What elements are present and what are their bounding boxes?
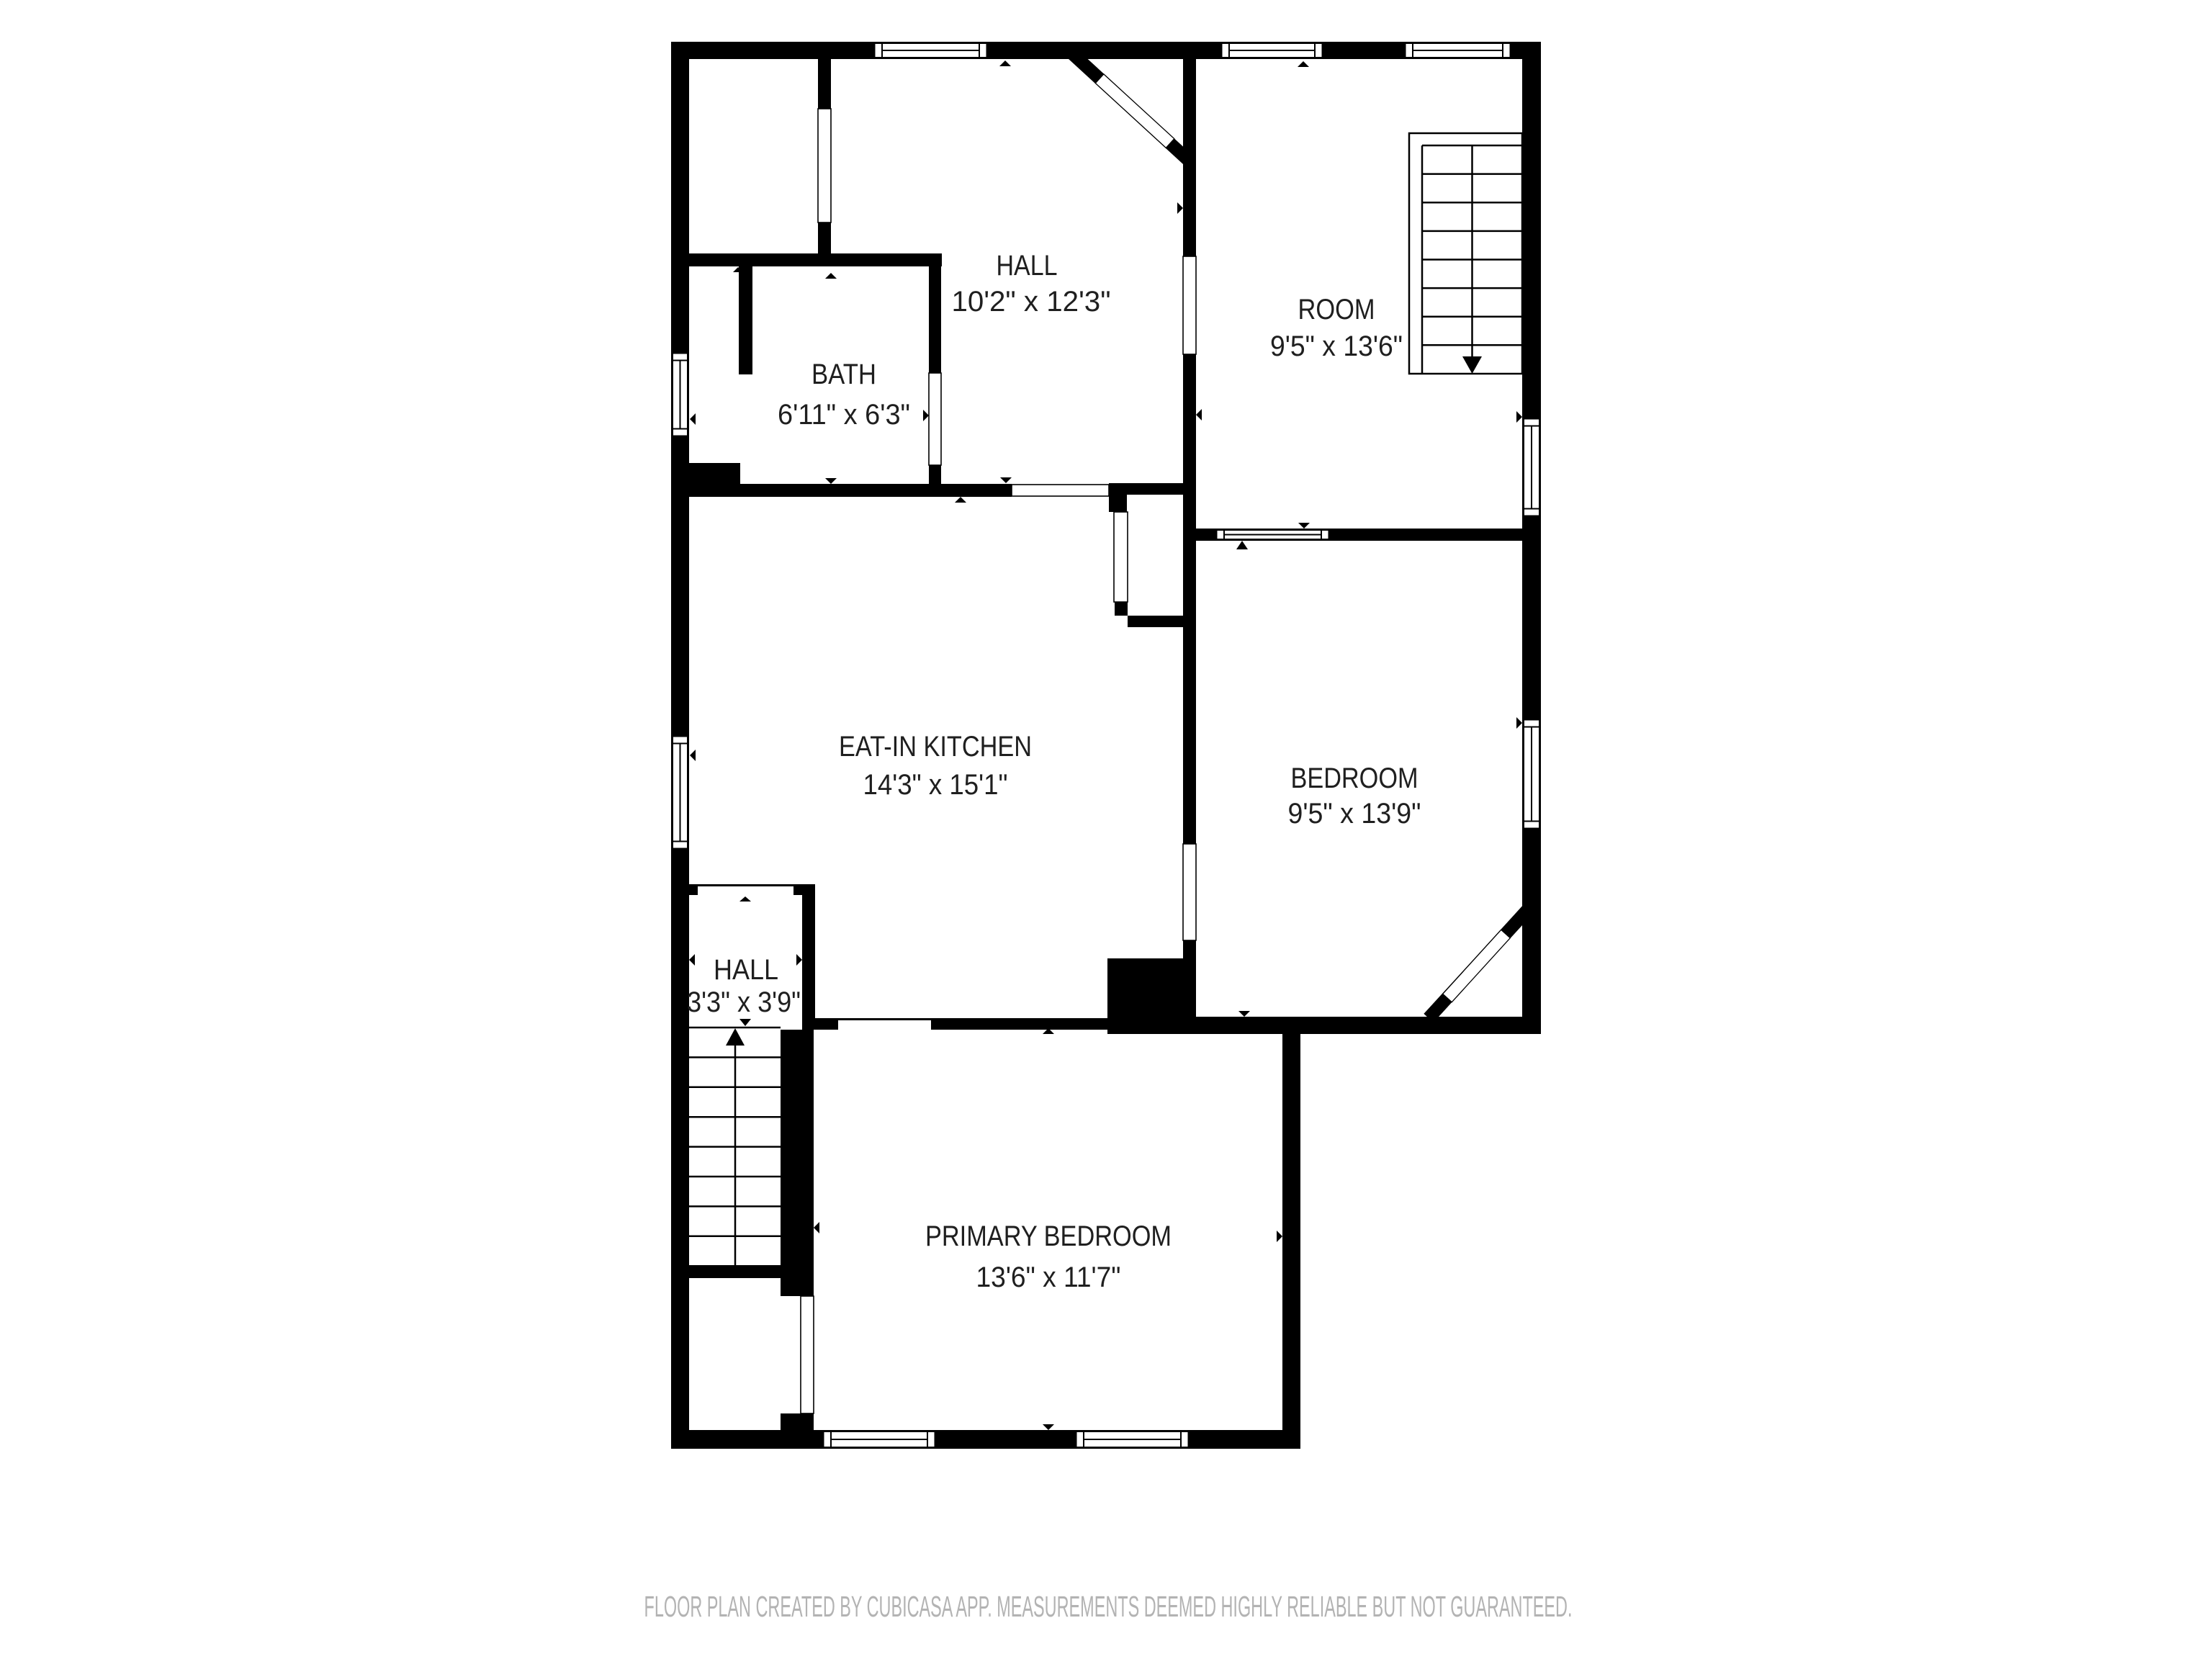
svg-text:HALL: HALL xyxy=(997,250,1058,282)
svg-text:PRIMARY BEDROOM: PRIMARY BEDROOM xyxy=(925,1220,1172,1252)
svg-text:13'6" x 11'7": 13'6" x 11'7" xyxy=(976,1262,1121,1293)
svg-text:10'2" x 12'3": 10'2" x 12'3" xyxy=(952,286,1111,318)
svg-text:FLOOR PLAN CREATED BY CUBICASA: FLOOR PLAN CREATED BY CUBICASA APP. MEAS… xyxy=(644,1590,1573,1623)
svg-text:ROOM: ROOM xyxy=(1298,294,1375,325)
svg-text:BATH: BATH xyxy=(811,359,876,390)
svg-text:EAT-IN KITCHEN: EAT-IN KITCHEN xyxy=(839,731,1032,763)
svg-text:14'3" x 15'1": 14'3" x 15'1" xyxy=(863,769,1008,801)
svg-text:9'5" x 13'6": 9'5" x 13'6" xyxy=(1270,331,1403,362)
svg-text:9'5" x 13'9": 9'5" x 13'9" xyxy=(1288,798,1421,829)
svg-text:HALL: HALL xyxy=(714,954,778,986)
svg-text:6'11" x 6'3": 6'11" x 6'3" xyxy=(778,399,910,431)
svg-text:3'3" x 3'9": 3'3" x 3'9" xyxy=(687,986,801,1018)
svg-text:BEDROOM: BEDROOM xyxy=(1291,763,1419,794)
